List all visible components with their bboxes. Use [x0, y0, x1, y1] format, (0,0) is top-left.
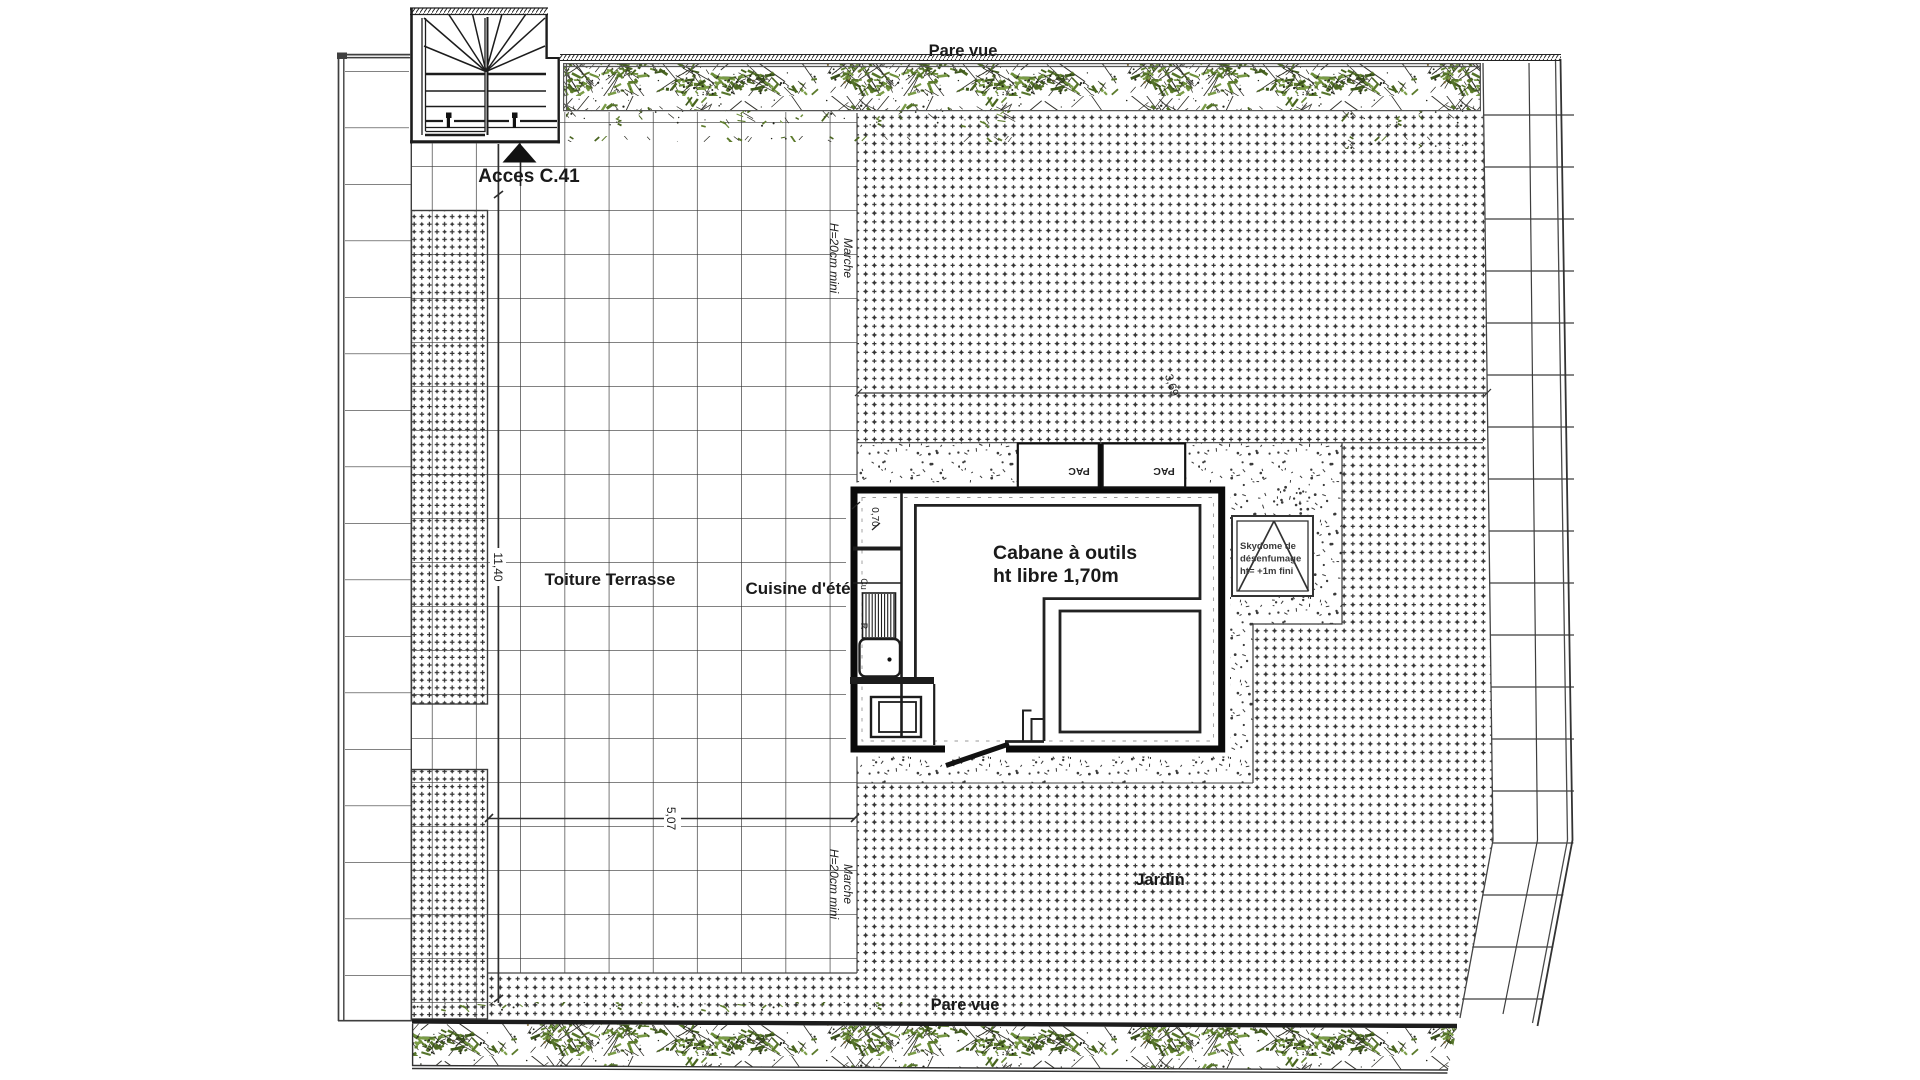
- svg-text:Acces C.41: Acces C.41: [478, 166, 580, 187]
- svg-text:H=20cm mini: H=20cm mini: [827, 223, 841, 294]
- svg-text:Pare vue: Pare vue: [931, 996, 1000, 1014]
- svg-text:Cu: Cu: [859, 578, 869, 590]
- svg-text:ht libre 1,70m: ht libre 1,70m: [993, 565, 1119, 587]
- svg-text:Cuisine d'été: Cuisine d'été: [745, 579, 850, 598]
- svg-text:PAC: PAC: [1153, 465, 1175, 477]
- svg-text:Cabane à outils: Cabane à outils: [993, 542, 1137, 564]
- svg-text:H=20cm mini: H=20cm mini: [827, 849, 841, 920]
- svg-text:PAC: PAC: [1068, 465, 1090, 477]
- svg-text:11,40: 11,40: [491, 552, 505, 581]
- svg-text:Jardin: Jardin: [1135, 871, 1185, 889]
- svg-text:Marche: Marche: [841, 864, 855, 904]
- svg-text:ht= +1m fini: ht= +1m fini: [1240, 566, 1293, 577]
- svg-text:Skydome de: Skydome de: [1240, 541, 1296, 552]
- svg-text:Pare vue: Pare vue: [929, 42, 998, 60]
- svg-text:0,70: 0,70: [869, 507, 880, 527]
- svg-text:R: R: [859, 623, 869, 630]
- svg-text:désenfumage: désenfumage: [1240, 554, 1301, 565]
- svg-text:Marche: Marche: [841, 238, 855, 278]
- svg-text:Toiture Terrasse: Toiture Terrasse: [545, 570, 676, 589]
- svg-text:5,07: 5,07: [664, 807, 678, 831]
